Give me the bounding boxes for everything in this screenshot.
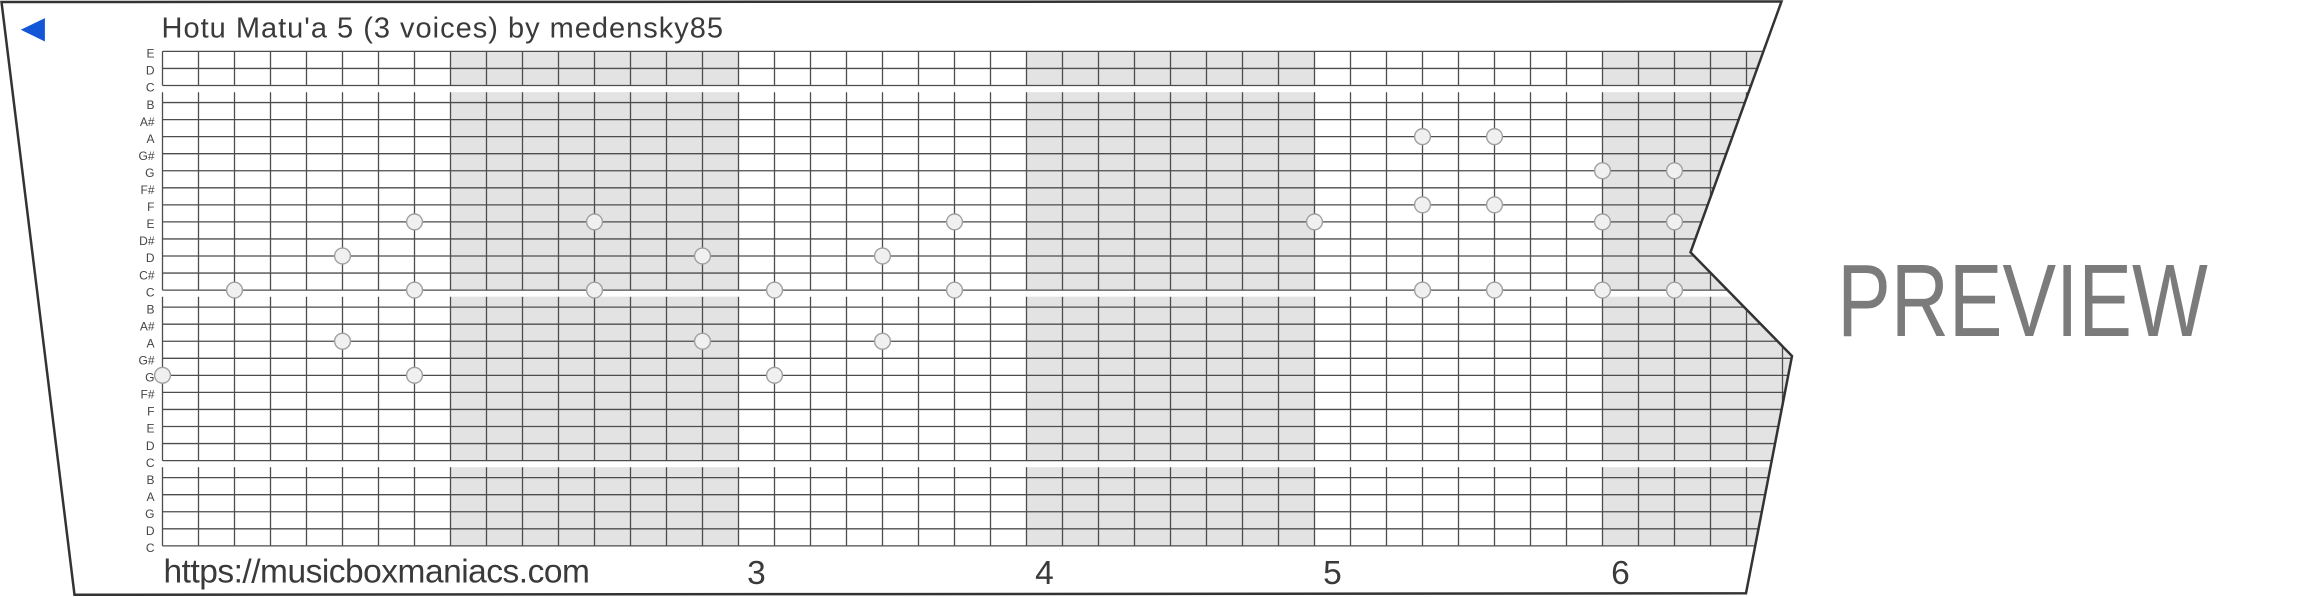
svg-text:C: C [146,285,155,299]
svg-text:3: 3 [747,555,766,592]
svg-text:https://musicboxmaniacs.com: https://musicboxmaniacs.com [164,553,590,590]
svg-text:Hotu Matu'a 5 (3 voices) by me: Hotu Matu'a 5 (3 voices) by medensky85 [162,12,725,44]
svg-text:C#: C# [139,268,155,282]
svg-text:G#: G# [138,149,154,163]
svg-text:A: A [146,132,154,146]
svg-text:A: A [146,490,154,504]
svg-text:A#: A# [140,115,155,129]
svg-text:A#: A# [140,319,155,333]
svg-text:F: F [147,405,154,419]
svg-text:6: 6 [1611,555,1630,592]
svg-text:F#: F# [140,183,154,197]
svg-text:E: E [146,217,154,231]
svg-text:D#: D# [139,234,155,248]
svg-text:D: D [146,251,155,265]
svg-text:B: B [146,473,154,487]
svg-text:F#: F# [140,388,154,402]
svg-text:C: C [146,541,155,555]
svg-text:PREVIEW: PREVIEW [1837,242,2207,358]
svg-text:G: G [145,507,154,521]
svg-text:C: C [146,81,155,95]
svg-text:C: C [146,456,155,470]
svg-text:5: 5 [1323,555,1342,592]
svg-text:4: 4 [1035,555,1054,592]
svg-text:D: D [146,439,155,453]
svg-text:B: B [146,98,154,112]
svg-text:G: G [145,371,154,385]
svg-text:G: G [145,166,154,180]
svg-text:E: E [146,422,154,436]
svg-text:A: A [146,336,154,350]
svg-text:B: B [146,302,154,316]
svg-text:G#: G# [138,354,154,368]
svg-text:D: D [146,524,155,538]
svg-text:F: F [147,200,154,214]
svg-text:D: D [146,64,155,78]
svg-text:E: E [146,47,154,61]
